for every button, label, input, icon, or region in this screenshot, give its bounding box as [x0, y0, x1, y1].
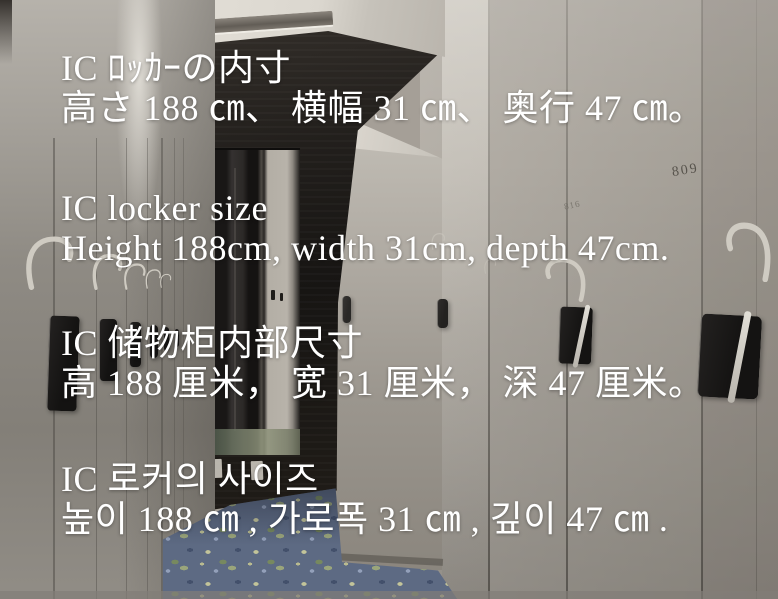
size-title-japanese: IC ﾛｯｶｰの内寸 — [61, 48, 761, 88]
size-dimensions-japanese: 高さ 188 ㎝、 横幅 31 ㎝、 奥行 47 ㎝。 — [61, 88, 761, 128]
text-block-chinese: IC 储物柜内部尺寸 高 188 厘米， 宽 31 厘米， 深 47 厘米。 — [61, 323, 761, 403]
size-dimensions-chinese: 高 188 厘米， 宽 31 厘米， 深 47 厘米。 — [61, 363, 761, 403]
locker-room-photo: 809 816 IC ﾛｯｶｰの内寸 高さ 188 ㎝、 横幅 31 ㎝、 奥行… — [0, 0, 778, 599]
size-dimensions-english: Height 188cm, width 31cm, depth 47cm. — [61, 228, 761, 268]
text-overlay: IC ﾛｯｶｰの内寸 高さ 188 ㎝、 横幅 31 ㎝、 奥行 47 ㎝。 I… — [0, 0, 778, 599]
text-block-english: IC locker size Height 188cm, width 31cm,… — [61, 188, 761, 268]
text-block-korean: IC 로커의 사이즈 높이 188 ㎝ , 가로폭 31 ㎝ , 깊이 47 ㎝… — [61, 459, 761, 539]
text-block-japanese: IC ﾛｯｶｰの内寸 高さ 188 ㎝、 横幅 31 ㎝、 奥行 47 ㎝。 — [61, 48, 761, 128]
size-dimensions-korean: 높이 188 ㎝ , 가로폭 31 ㎝ , 깊이 47 ㎝ . — [61, 499, 761, 539]
size-title-english: IC locker size — [61, 188, 761, 228]
size-title-chinese: IC 储物柜内部尺寸 — [61, 323, 761, 363]
size-title-korean: IC 로커의 사이즈 — [61, 459, 761, 499]
